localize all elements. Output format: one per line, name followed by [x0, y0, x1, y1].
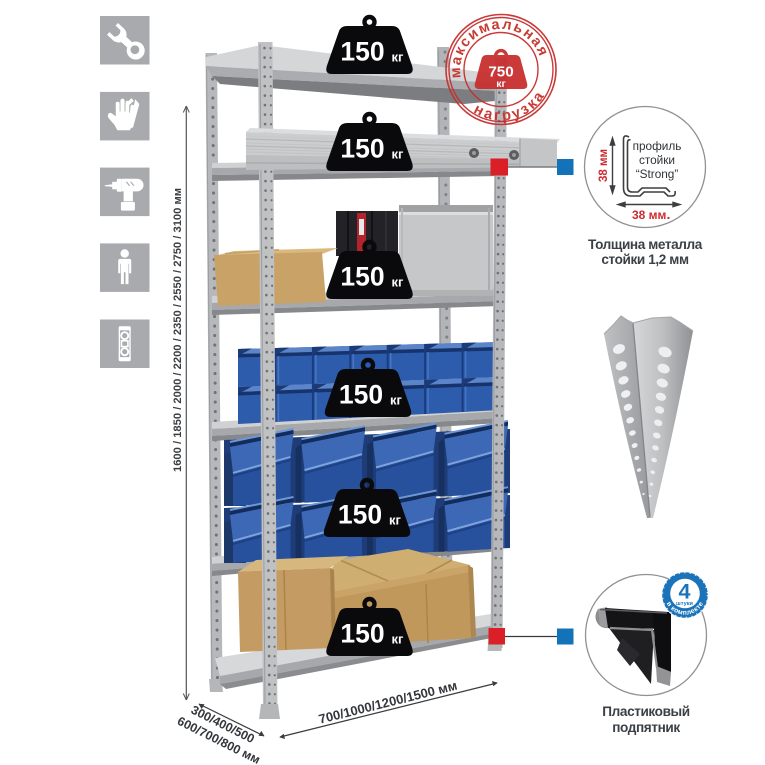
svg-text:Толщина металла: Толщина металла: [588, 237, 703, 252]
svg-text:Пластиковый: Пластиковый: [602, 704, 689, 719]
svg-text:кг: кг: [496, 78, 506, 90]
svg-text:700/1000/1200/1500 мм: 700/1000/1200/1500 мм: [317, 678, 459, 727]
svg-text:38 мм: 38 мм: [598, 149, 610, 182]
svg-text:подпятник: подпятник: [612, 720, 680, 735]
svg-text:38 мм.: 38 мм.: [632, 206, 670, 222]
svg-text:“Strong”: “Strong”: [636, 167, 679, 181]
svg-text:профиль: профиль: [633, 139, 682, 153]
svg-text:1600 / 1850 / 2000 / 2200 / 23: 1600 / 1850 / 2000 / 2200 / 2350 / 2550 …: [172, 188, 184, 472]
svg-text:стойки 1,2 мм: стойки 1,2 мм: [601, 252, 689, 267]
svg-text:штуки: штуки: [676, 601, 693, 607]
svg-text:стойки: стойки: [639, 153, 675, 167]
